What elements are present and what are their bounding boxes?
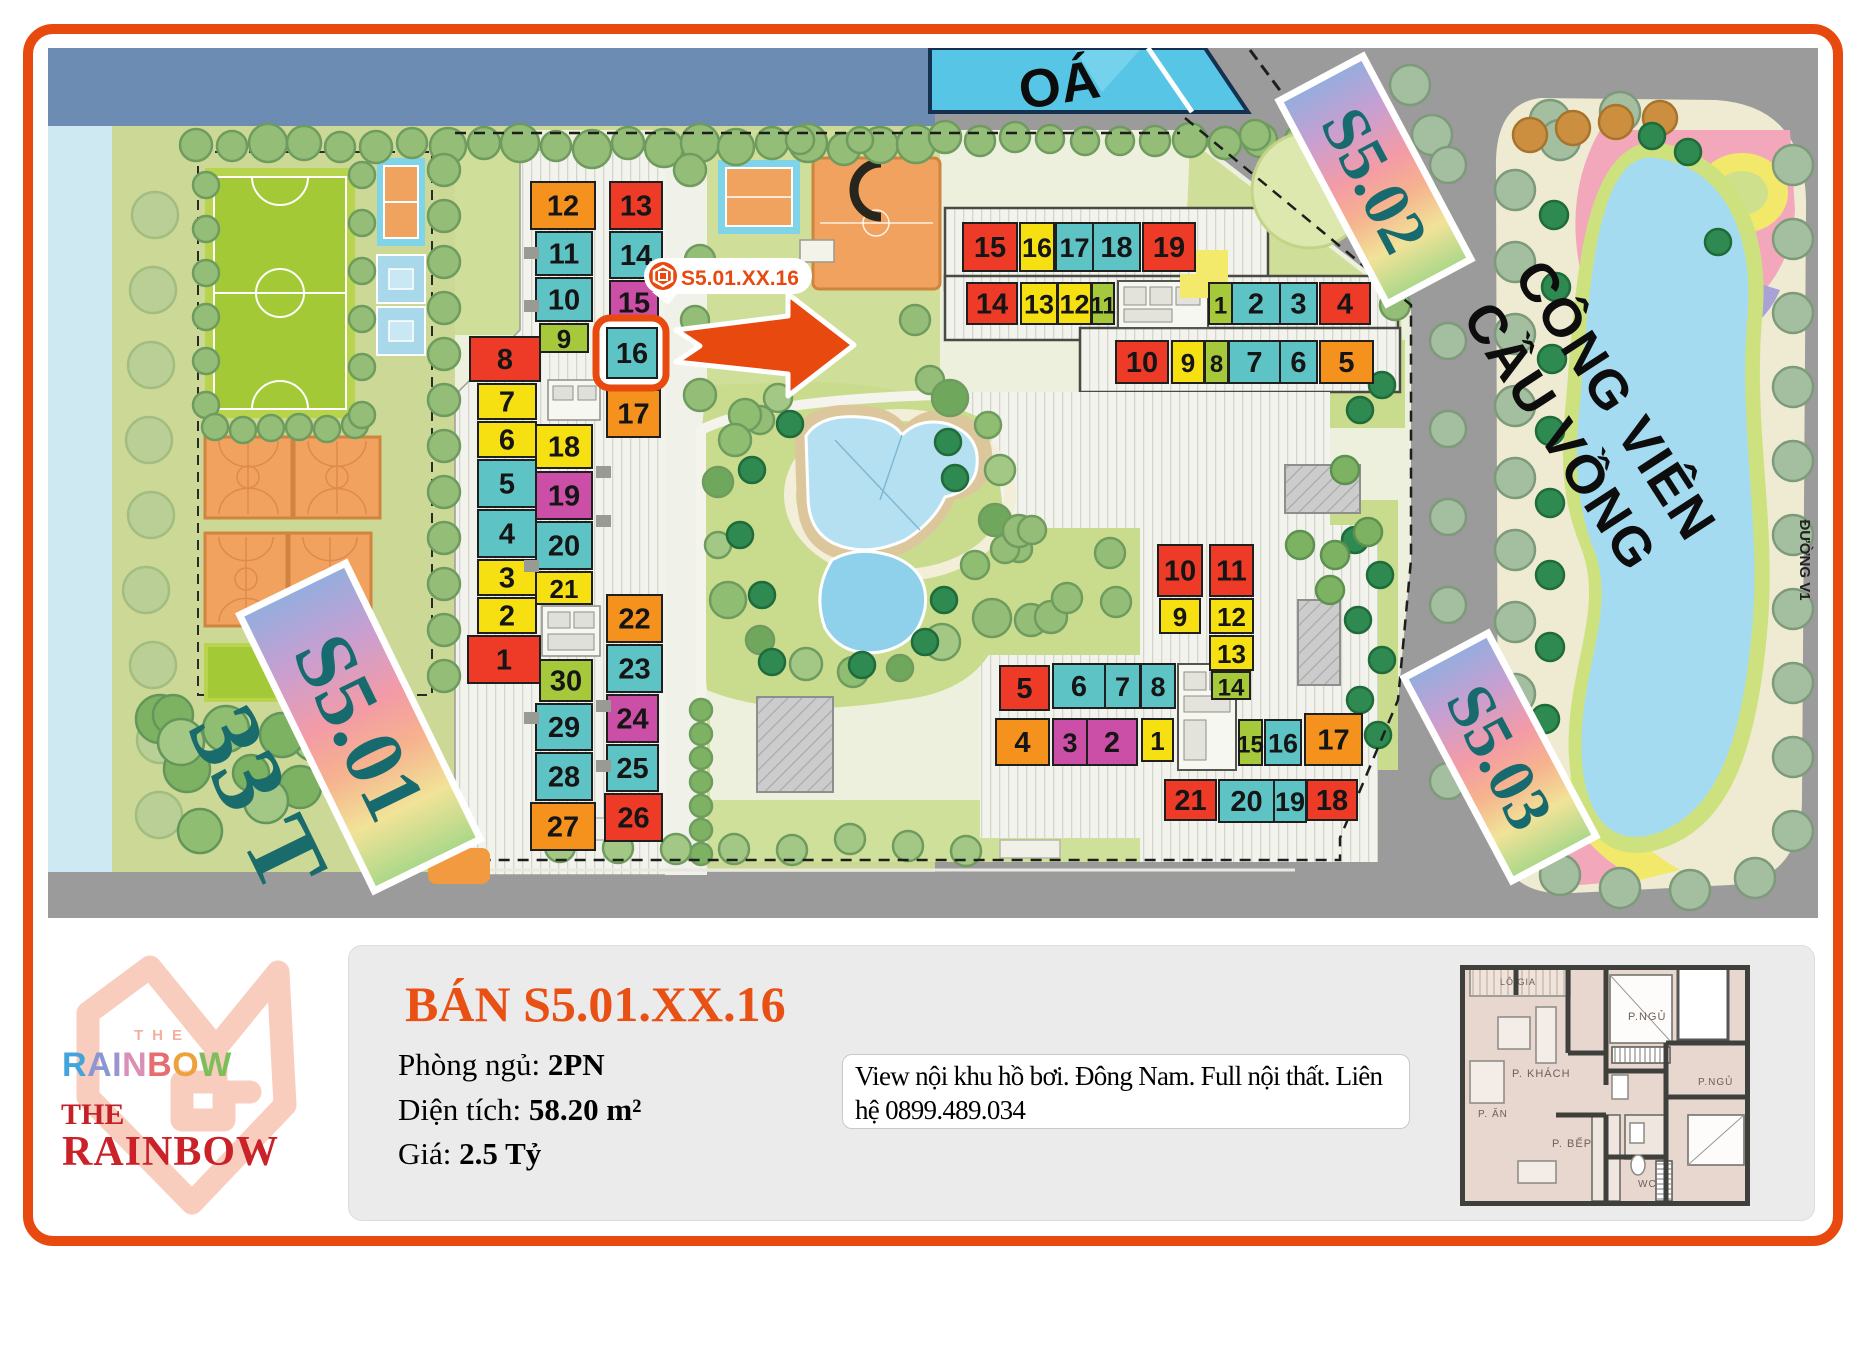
svg-text:1: 1 — [496, 645, 512, 677]
svg-text:21: 21 — [550, 574, 579, 604]
svg-text:9: 9 — [1173, 602, 1187, 632]
svg-text:18: 18 — [1316, 785, 1348, 817]
svg-text:2: 2 — [1104, 727, 1120, 759]
svg-text:19: 19 — [1153, 232, 1185, 264]
svg-text:14: 14 — [976, 289, 1008, 321]
svg-text:THE: THE — [61, 1098, 124, 1131]
svg-text:20: 20 — [1230, 786, 1262, 818]
svg-text:12: 12 — [1217, 602, 1246, 632]
svg-text:30: 30 — [550, 666, 582, 698]
svg-text:2: 2 — [499, 601, 515, 633]
svg-text:3: 3 — [499, 563, 515, 595]
svg-text:8: 8 — [1150, 672, 1165, 702]
svg-text:10: 10 — [1126, 347, 1158, 379]
svg-text:24: 24 — [616, 704, 648, 736]
svg-text:1: 1 — [1150, 726, 1164, 756]
svg-text:P. ĂN: P. ĂN — [1478, 1107, 1508, 1120]
svg-text:25: 25 — [616, 753, 648, 785]
svg-text:9: 9 — [557, 324, 571, 354]
svg-text:14: 14 — [1218, 675, 1245, 702]
svg-text:1: 1 — [1214, 293, 1227, 320]
svg-text:13: 13 — [620, 191, 652, 223]
svg-text:P. KHÁCH: P. KHÁCH — [1512, 1067, 1571, 1080]
svg-text:7: 7 — [1115, 672, 1130, 702]
svg-text:7: 7 — [499, 387, 515, 419]
svg-text:16: 16 — [616, 338, 648, 370]
svg-text:17: 17 — [1317, 725, 1349, 757]
svg-text:8: 8 — [1210, 351, 1223, 378]
svg-text:6: 6 — [1071, 671, 1087, 703]
svg-text:17: 17 — [617, 399, 649, 431]
svg-text:10: 10 — [1164, 556, 1196, 588]
svg-text:11: 11 — [1216, 556, 1247, 588]
svg-text:5: 5 — [499, 469, 515, 501]
svg-text:27: 27 — [547, 812, 579, 844]
svg-text:OÁ: OÁ — [1014, 49, 1103, 121]
svg-text:12: 12 — [1059, 290, 1089, 320]
svg-text:28: 28 — [548, 762, 580, 794]
svg-text:19: 19 — [548, 481, 580, 513]
svg-text:13: 13 — [1217, 639, 1246, 669]
svg-text:15: 15 — [1237, 732, 1264, 759]
svg-text:18: 18 — [1100, 232, 1132, 264]
svg-text:10: 10 — [548, 285, 580, 317]
svg-text:29: 29 — [548, 712, 580, 744]
svg-text:6: 6 — [499, 425, 515, 457]
svg-text:19: 19 — [1275, 787, 1305, 817]
svg-text:20: 20 — [548, 531, 580, 563]
svg-text:P. BẾP: P. BẾP — [1552, 1137, 1592, 1150]
svg-text:13: 13 — [1024, 290, 1054, 320]
svg-text:17: 17 — [1059, 233, 1089, 263]
svg-text:16: 16 — [1022, 233, 1052, 263]
svg-text:RAINBOW: RAINBOW — [62, 1129, 279, 1175]
svg-text:11: 11 — [1090, 293, 1115, 320]
svg-text:22: 22 — [618, 604, 650, 636]
svg-text:4: 4 — [1337, 289, 1353, 321]
svg-text:11: 11 — [549, 239, 580, 271]
svg-text:8: 8 — [497, 344, 513, 376]
svg-text:P.NGỦ: P.NGỦ — [1698, 1075, 1733, 1088]
svg-text:9: 9 — [1181, 348, 1195, 378]
svg-text:12: 12 — [547, 191, 579, 223]
svg-text:23: 23 — [618, 654, 650, 686]
svg-text:7: 7 — [1246, 347, 1262, 379]
svg-text:3: 3 — [1290, 289, 1306, 321]
svg-text:26: 26 — [617, 803, 649, 835]
svg-text:LÔ GIA: LÔ GIA — [1500, 977, 1536, 987]
svg-text:2: 2 — [1248, 289, 1264, 321]
svg-text:4: 4 — [1014, 727, 1030, 759]
svg-text:5: 5 — [1338, 347, 1354, 379]
svg-text:WC: WC — [1638, 1179, 1657, 1190]
svg-text:3: 3 — [1062, 728, 1077, 758]
svg-text:5: 5 — [1016, 673, 1032, 705]
svg-text:THE: THE — [134, 1027, 191, 1044]
svg-text:16: 16 — [1268, 729, 1298, 759]
svg-text:4: 4 — [499, 519, 515, 551]
svg-text:S5.01.XX.16: S5.01.XX.16 — [681, 267, 799, 290]
svg-text:6: 6 — [1290, 347, 1306, 379]
svg-text:21: 21 — [1174, 785, 1206, 817]
svg-text:RAINBOW: RAINBOW — [62, 1046, 232, 1084]
svg-text:18: 18 — [548, 432, 580, 464]
svg-text:15: 15 — [974, 232, 1006, 264]
svg-text:ĐƯỜNG V1: ĐƯỜNG V1 — [1796, 519, 1814, 600]
svg-text:P.NGỦ: P.NGỦ — [1628, 1010, 1666, 1023]
